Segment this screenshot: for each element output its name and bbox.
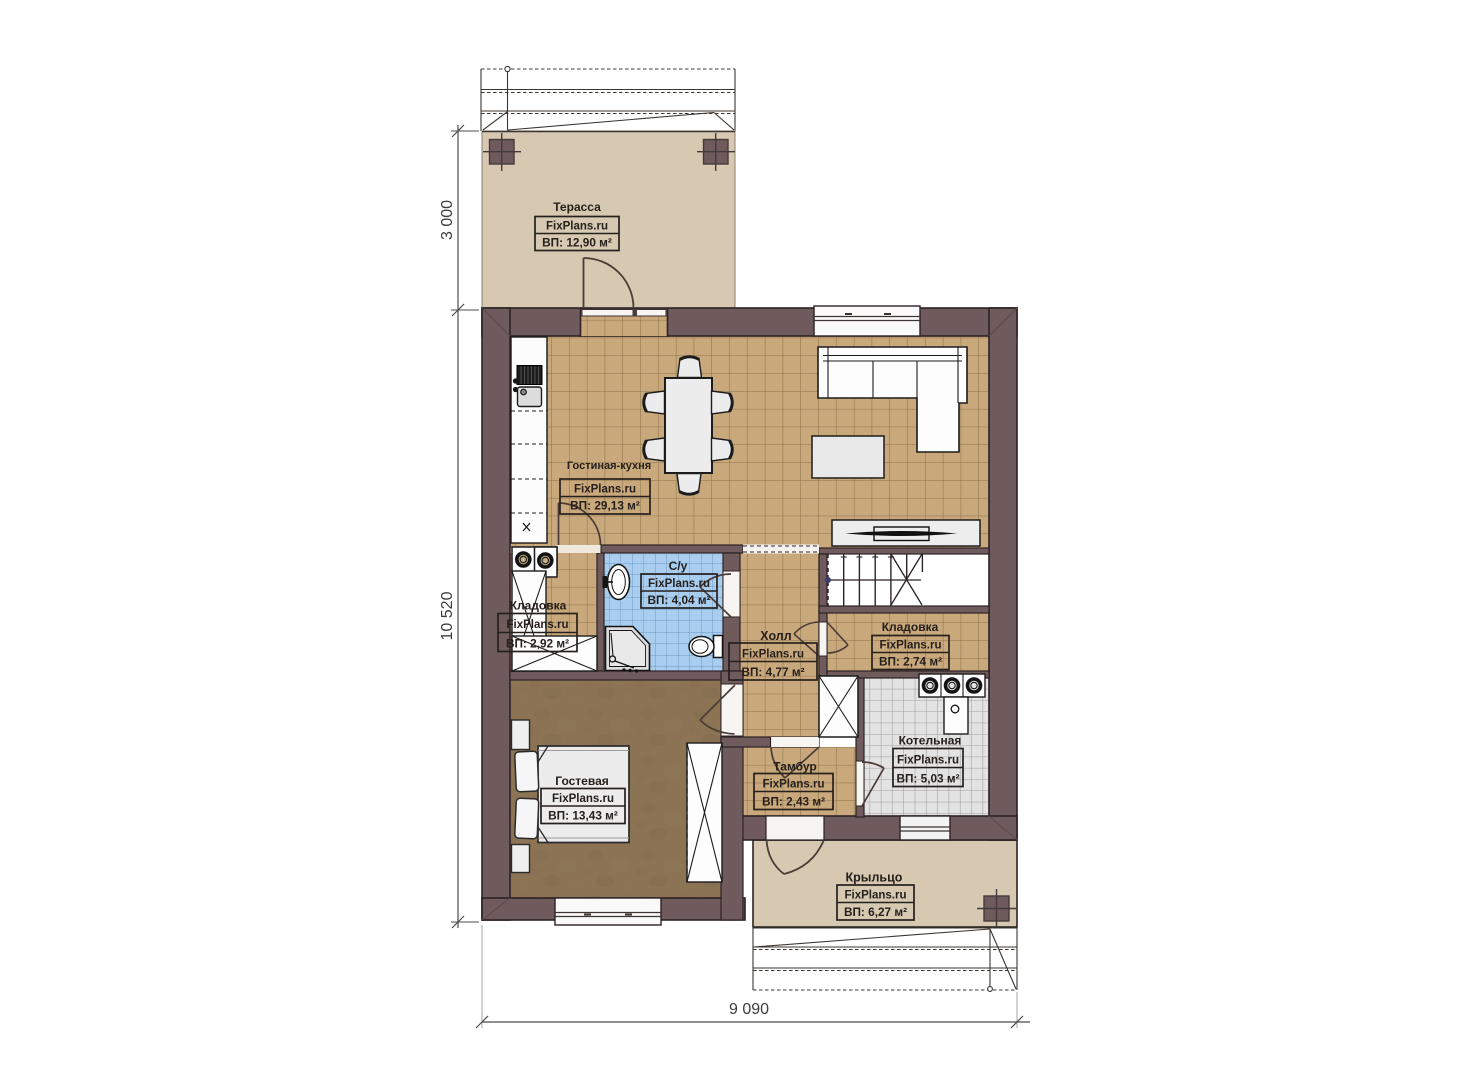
svg-text:ВП: 29,13 м²: ВП: 29,13 м² xyxy=(570,499,640,513)
svg-text:Тамбур: Тамбур xyxy=(773,760,817,774)
svg-text:FixPlans.ru: FixPlans.ru xyxy=(845,890,907,902)
svg-text:Холл: Холл xyxy=(760,629,791,643)
svg-text:Терасса: Терасса xyxy=(553,200,601,214)
svg-text:Крыльцо: Крыльцо xyxy=(846,871,903,885)
svg-text:3 000: 3 000 xyxy=(439,200,456,240)
svg-text:ВП: 13,43 м²: ВП: 13,43 м² xyxy=(548,809,618,823)
svg-text:С/у: С/у xyxy=(669,559,688,573)
svg-text:ВП: 2,92 м²: ВП: 2,92 м² xyxy=(506,637,569,651)
svg-text:FixPlans.ru: FixPlans.ru xyxy=(880,640,942,652)
svg-text:Гостевая: Гостевая xyxy=(555,774,609,788)
svg-text:Котельная: Котельная xyxy=(899,734,962,748)
svg-text:ВП: 5,03 м²: ВП: 5,03 м² xyxy=(896,772,959,786)
svg-text:FixPlans.ru: FixPlans.ru xyxy=(648,578,710,590)
svg-text:ВП: 2,43 м²: ВП: 2,43 м² xyxy=(762,795,825,809)
svg-text:10 520: 10 520 xyxy=(439,591,456,640)
svg-text:ВП: 12,90 м²: ВП: 12,90 м² xyxy=(542,236,612,250)
svg-text:Кладовка: Кладовка xyxy=(510,599,567,613)
svg-text:ВП: 4,77 м²: ВП: 4,77 м² xyxy=(741,665,804,679)
svg-text:FixPlans.ru: FixPlans.ru xyxy=(897,755,959,767)
svg-text:FixPlans.ru: FixPlans.ru xyxy=(574,484,636,496)
svg-text:FixPlans.ru: FixPlans.ru xyxy=(546,221,608,233)
svg-text:ВП: 6,27 м²: ВП: 6,27 м² xyxy=(844,905,907,919)
svg-text:FixPlans.ru: FixPlans.ru xyxy=(552,793,614,805)
svg-text:Гостиная-кухня: Гостиная-кухня xyxy=(567,460,651,472)
svg-text:FixPlans.ru: FixPlans.ru xyxy=(763,779,825,791)
svg-text:ВП: 2,74 м²: ВП: 2,74 м² xyxy=(879,655,942,669)
svg-text:Кладовка: Кладовка xyxy=(882,620,939,634)
svg-text:FixPlans.ru: FixPlans.ru xyxy=(742,649,804,661)
svg-text:FixPlans.ru: FixPlans.ru xyxy=(507,619,569,631)
svg-text:ВП: 4,04 м²: ВП: 4,04 м² xyxy=(647,593,710,607)
svg-text:9 090: 9 090 xyxy=(729,1001,769,1018)
